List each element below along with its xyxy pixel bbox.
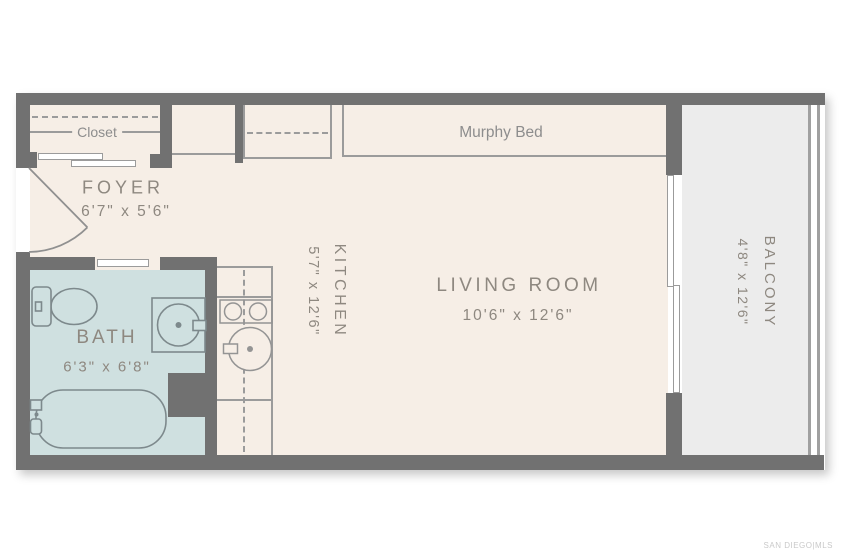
bath-dims: 6'3" x 6'8" <box>63 359 151 376</box>
murphy-bed-label: Murphy Bed <box>459 124 543 142</box>
balcony-railing-line-edge <box>817 105 820 455</box>
bath-label: BATH <box>76 327 137 349</box>
mls-watermark: SAN DIEGO|MLS <box>764 541 833 550</box>
counter-center-dashed-line <box>243 270 245 452</box>
bath-pocket-door-panel <box>97 259 149 267</box>
wall-left-lower <box>16 252 30 455</box>
murphy-bed-left-line <box>342 105 344 157</box>
wall-bath-top-left <box>30 257 95 270</box>
balcony-railing-line-outer <box>808 105 811 455</box>
wall-closet-right <box>160 105 172 168</box>
murphy-bed-bottom-line <box>342 155 666 157</box>
closet-label: Closet <box>72 124 122 140</box>
balcony-slider-panel-2 <box>673 285 680 393</box>
living-room-dims: 10'6" x 12'6" <box>462 307 573 325</box>
closet3-bottom-line <box>243 157 332 159</box>
entry-door-jamb <box>16 152 37 168</box>
floor-plan: Closet Murphy Bed FOYER 6'7" x 5'6" BATH… <box>0 0 841 560</box>
wall-balcony-top <box>666 105 682 175</box>
wall-bottom <box>16 455 824 470</box>
foyer-dims: 6'7" x 5'6" <box>81 203 171 221</box>
wall-closet-right-foot <box>150 154 160 168</box>
wall-bath-top-right <box>160 257 205 270</box>
counter-right-line <box>271 266 273 455</box>
wall-closet-divider <box>235 105 243 163</box>
kitchen-label-block: KITCHEN 5'7" x 12'6" <box>299 244 353 339</box>
foyer-label: FOYER <box>82 178 164 199</box>
wall-bath-block <box>168 373 217 417</box>
balcony-label-block: BALCONY 4'8" x 12'6" <box>729 236 783 329</box>
wall-bath-kitchen <box>205 257 217 455</box>
closet-sliding-door-panel-2 <box>71 160 136 167</box>
balcony-slider-panel-1 <box>667 175 674 287</box>
wall-top <box>16 93 825 105</box>
wall-balcony-bottom <box>666 393 682 455</box>
closet2-bottom-line <box>172 153 235 155</box>
kitchen-label: KITCHEN <box>326 244 353 339</box>
balcony-label: BALCONY <box>756 236 783 329</box>
closet3-left-line <box>243 105 245 159</box>
closet3-right-line <box>330 105 332 159</box>
closet-shelf-dashed-line <box>32 116 158 118</box>
living-room-label: LIVING ROOM <box>436 275 601 297</box>
kitchen-dims: 5'7" x 12'6" <box>299 244 326 339</box>
counter-top-line <box>215 266 273 268</box>
balcony-dims: 4'8" x 12'6" <box>729 236 756 329</box>
closet3-shelf-dashed-line <box>247 132 328 134</box>
closet-sliding-door-panel-1 <box>38 153 103 160</box>
